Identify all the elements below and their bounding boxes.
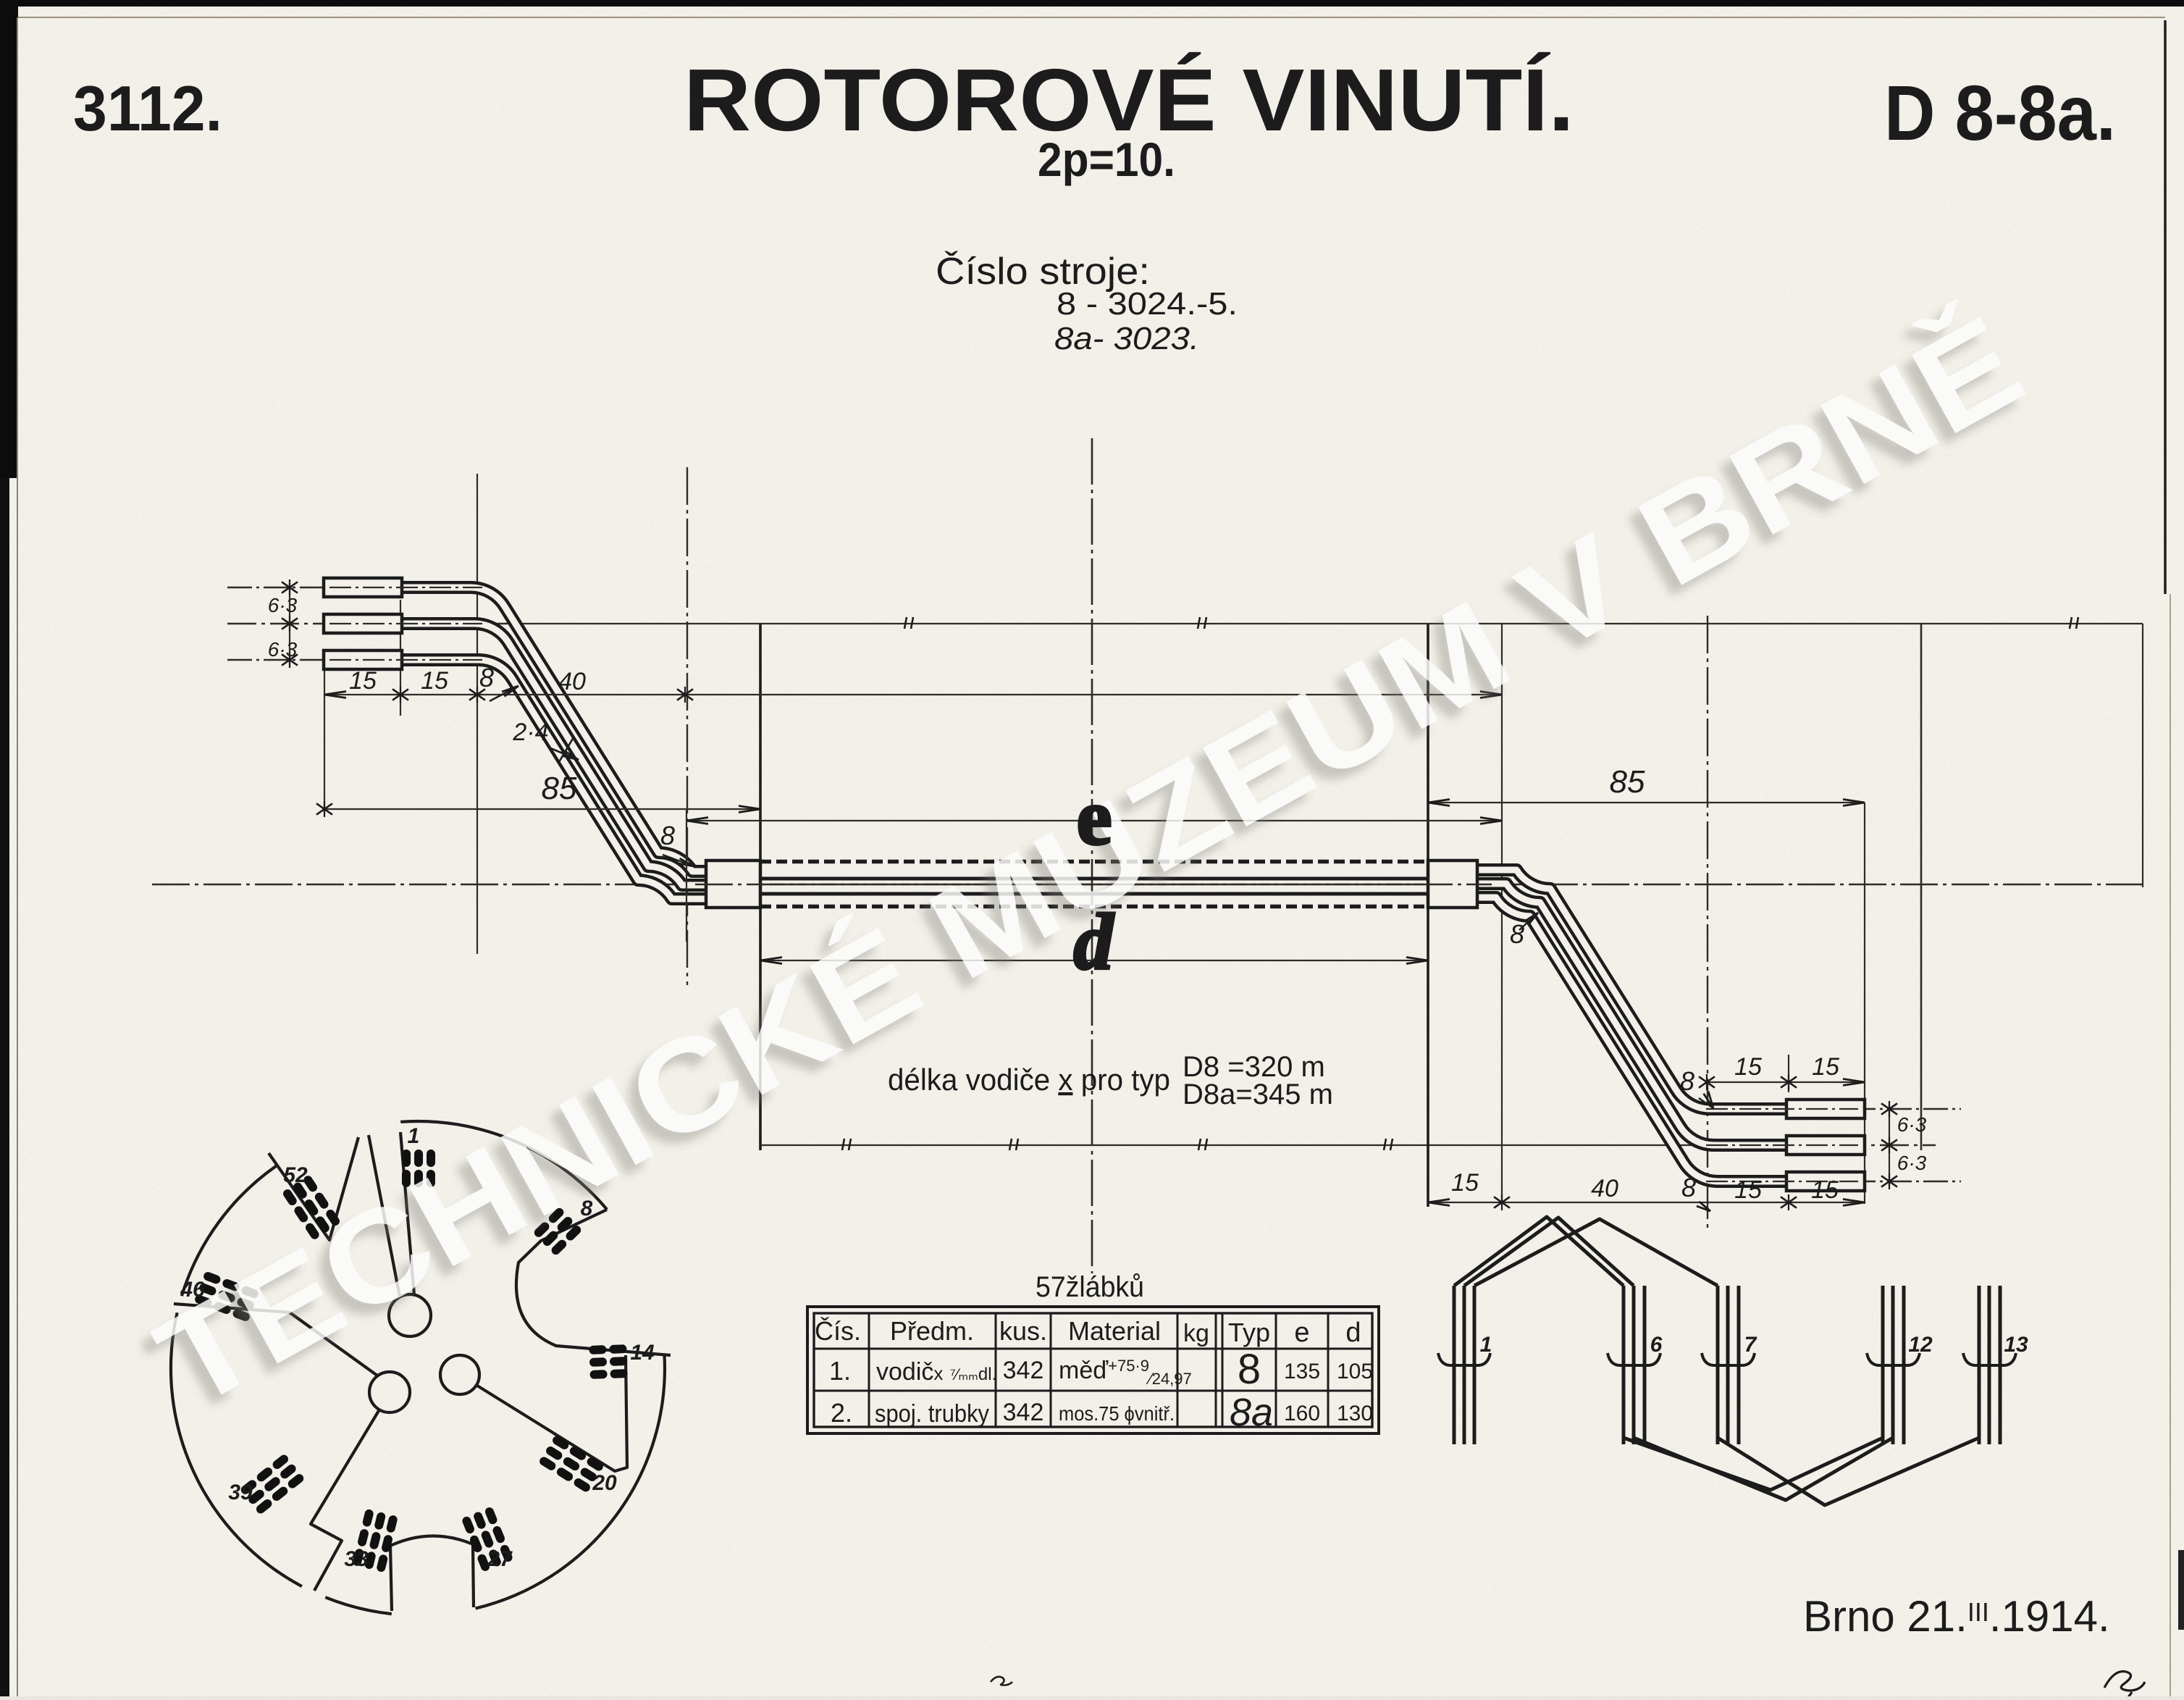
svg-text:52: 52 <box>283 1163 308 1187</box>
svg-text:33: 33 <box>344 1547 369 1571</box>
svg-text:12: 12 <box>1908 1333 1933 1357</box>
svg-text:160: 160 <box>1284 1402 1320 1425</box>
svg-text:6: 6 <box>1650 1333 1663 1357</box>
svg-text:57žlábků: 57žlábků <box>1036 1271 1144 1303</box>
svg-text:d: d <box>1345 1318 1361 1348</box>
svg-text:342: 342 <box>1003 1399 1044 1426</box>
svg-text:13: 13 <box>2004 1333 2028 1357</box>
svg-text:e: e <box>1077 773 1112 861</box>
svg-text:8: 8 <box>1680 1066 1694 1096</box>
svg-text:2.: 2. <box>831 1398 852 1428</box>
svg-text:39: 39 <box>228 1481 253 1504</box>
svg-text:8: 8 <box>479 663 494 692</box>
svg-text:Brno 21.III.1914.: Brno 21.III.1914. <box>1803 1592 2110 1641</box>
svg-text:e: e <box>1294 1318 1309 1348</box>
svg-text:8a- 3023.: 8a- 3023. <box>1054 321 1199 356</box>
svg-text:3112.: 3112. <box>73 72 222 144</box>
svg-text:6·3: 6·3 <box>268 638 298 661</box>
svg-text:6·3: 6·3 <box>1897 1152 1927 1174</box>
svg-text:mos.75 ϕvnitř.: mos.75 ϕvnitř. <box>1059 1402 1175 1425</box>
svg-text:40: 40 <box>1591 1175 1618 1202</box>
svg-text:7: 7 <box>1744 1333 1757 1357</box>
svg-text:85: 85 <box>1610 764 1645 800</box>
svg-text:15: 15 <box>1734 1053 1762 1081</box>
svg-text:kus.: kus. <box>999 1316 1047 1346</box>
svg-text:6·3: 6·3 <box>1897 1113 1927 1136</box>
svg-text:6·3: 6·3 <box>268 594 298 616</box>
svg-text:D 8-8a.: D 8-8a. <box>1884 69 2116 156</box>
svg-text:15: 15 <box>1812 1053 1839 1081</box>
svg-text:1: 1 <box>1480 1333 1492 1357</box>
svg-text:15: 15 <box>349 667 377 695</box>
svg-text:2·4: 2·4 <box>512 719 548 746</box>
svg-text:8: 8 <box>1510 919 1524 949</box>
svg-text:20: 20 <box>592 1471 617 1495</box>
svg-text:spoj. trubky: spoj. trubky <box>875 1400 989 1428</box>
svg-text:Čís.: Čís. <box>815 1316 861 1346</box>
svg-text:40: 40 <box>558 668 586 695</box>
svg-text:342: 342 <box>1003 1357 1044 1384</box>
svg-text:130: 130 <box>1337 1402 1373 1425</box>
svg-text:Předm.: Předm. <box>890 1316 974 1346</box>
svg-text:2p=10.: 2p=10. <box>1038 133 1175 186</box>
svg-text:15: 15 <box>1811 1176 1839 1204</box>
svg-text:105: 105 <box>1337 1360 1373 1383</box>
svg-text:8: 8 <box>660 821 675 850</box>
svg-text:15: 15 <box>1734 1176 1762 1204</box>
svg-text:15: 15 <box>1451 1169 1479 1197</box>
svg-text:15: 15 <box>421 667 448 695</box>
svg-text:1: 1 <box>408 1124 420 1148</box>
svg-text:14: 14 <box>630 1341 655 1365</box>
svg-text:8: 8 <box>1681 1173 1696 1202</box>
svg-text:délka vodiče x pro typ: délka vodiče x pro typ <box>888 1063 1170 1097</box>
svg-text:27: 27 <box>487 1547 513 1571</box>
svg-text:135: 135 <box>1284 1360 1320 1383</box>
svg-text:Typ: Typ <box>1228 1318 1270 1347</box>
svg-text:d: d <box>1074 897 1115 986</box>
svg-text:8 - 3024.-5.: 8 - 3024.-5. <box>1057 286 1238 322</box>
svg-text:85: 85 <box>542 771 577 806</box>
svg-text:1.: 1. <box>829 1356 851 1386</box>
svg-text:kg: kg <box>1183 1320 1209 1347</box>
svg-text:D8a=345 m: D8a=345 m <box>1183 1079 1333 1110</box>
svg-text:Material: Material <box>1068 1316 1161 1346</box>
svg-text:8a: 8a <box>1230 1391 1273 1434</box>
svg-text:8: 8 <box>1238 1346 1261 1393</box>
